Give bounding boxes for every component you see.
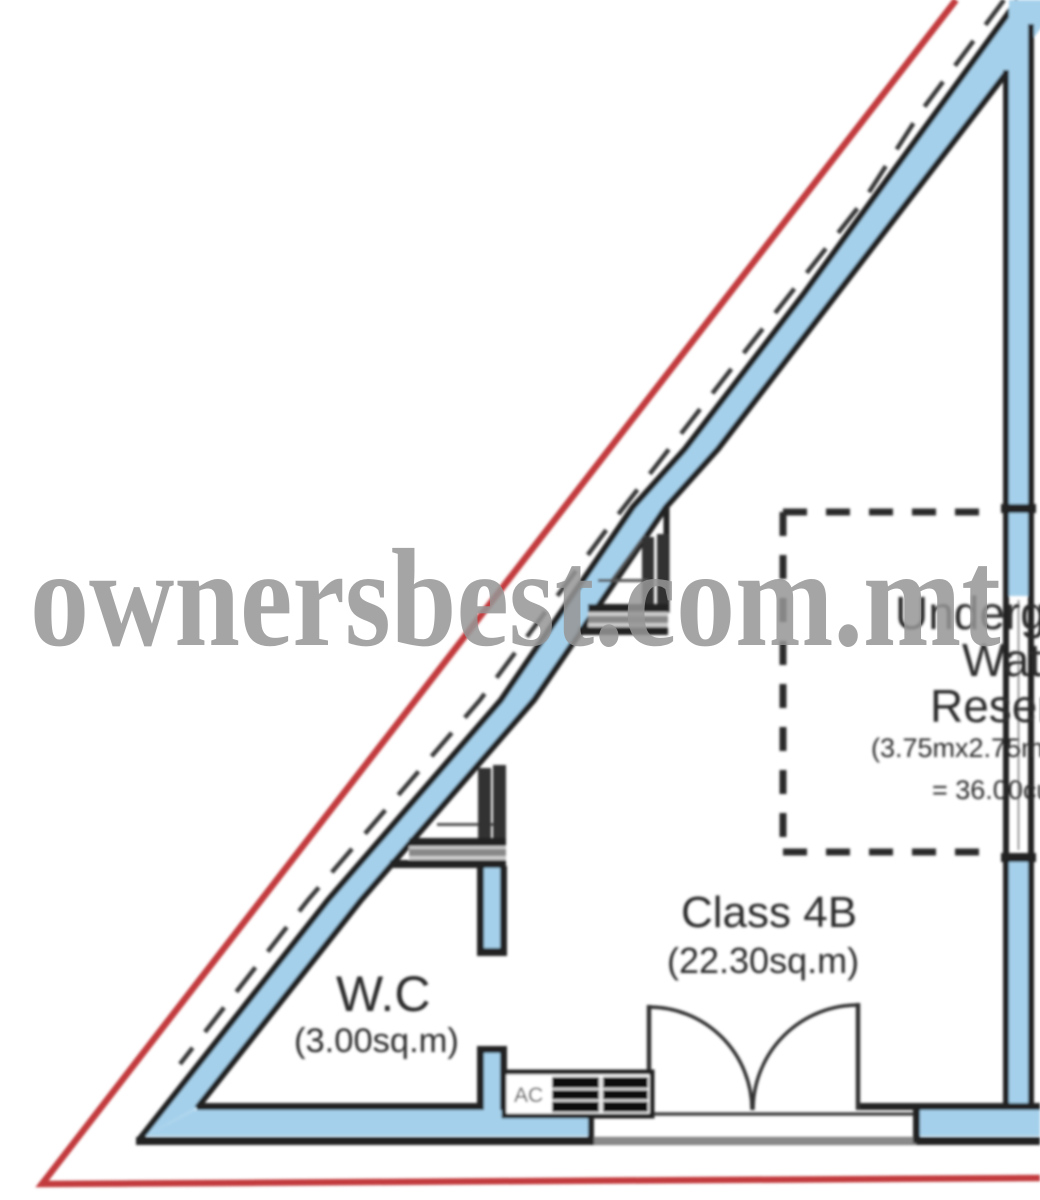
svg-text:W.C: W.C	[336, 966, 430, 1022]
svg-text:(22.30sq.m): (22.30sq.m)	[667, 940, 859, 981]
svg-text:= 36.00cu.m: = 36.00cu.m	[932, 775, 1040, 805]
svg-text:ownersbest.com.mt: ownersbest.com.mt	[30, 522, 1001, 677]
svg-text:(3.00sq.m): (3.00sq.m)	[294, 1022, 459, 1060]
svg-text:Class 4B: Class 4B	[681, 888, 857, 937]
svg-text:AC: AC	[514, 1084, 543, 1107]
svg-text:Reservoir: Reservoir	[930, 680, 1040, 732]
svg-text:(3.75mx2.75m: (3.75mx2.75m	[871, 733, 1040, 763]
